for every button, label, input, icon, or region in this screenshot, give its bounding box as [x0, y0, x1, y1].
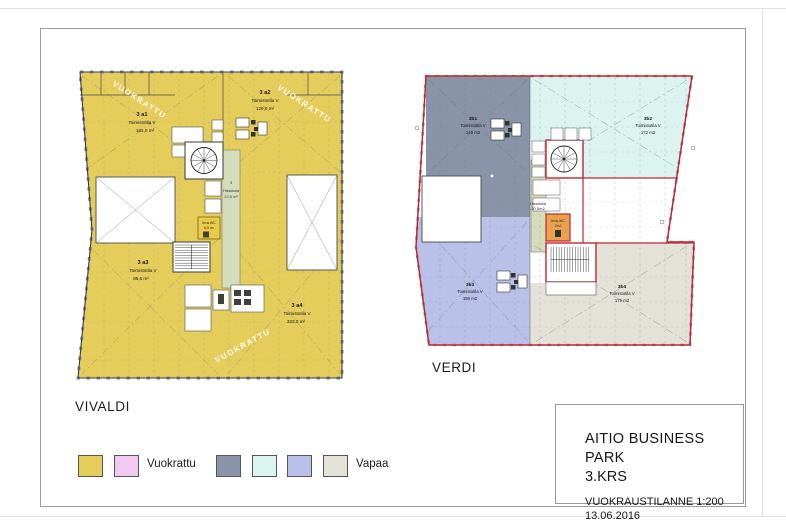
svg-text:3b3: 3b3 — [466, 282, 475, 288]
svg-text:181,0 m²: 181,0 m² — [136, 128, 155, 133]
svg-text:Toimistotila V: Toimistotila V — [609, 291, 634, 296]
svg-text:3 a3: 3 a3 — [138, 260, 149, 266]
status-line: VUOKRAUSTILANNE 1:200 — [585, 495, 743, 509]
legend-swatch-beige — [323, 455, 348, 477]
svg-text:3b2: 3b2 — [644, 116, 653, 122]
svg-text:3b1: 3b1 — [469, 116, 478, 122]
svg-text:3 a1: 3 a1 — [137, 112, 148, 118]
svg-text:22,0 m²: 22,0 m² — [224, 194, 238, 199]
legend-label-vuokrattu: Vuokrattu — [147, 458, 196, 470]
sheet-edge-top — [0, 8, 786, 9]
legend-swatch-pink — [114, 455, 139, 477]
svg-text:145 m2: 145 m2 — [466, 130, 481, 135]
svg-text:Hissiaula: Hissiaula — [223, 188, 240, 193]
svg-text:172 m2: 172 m2 — [641, 130, 656, 135]
svg-text:Toimistotila V: Toimistotila V — [457, 289, 482, 294]
vivaldi-lobby-strip — [222, 150, 240, 288]
svg-text:Toimistotila V: Toimistotila V — [283, 311, 311, 316]
verdi-wc-area: 7m2 — [555, 224, 562, 228]
svg-text:Toimistotila V: Toimistotila V — [129, 268, 157, 273]
svg-text:129,0 m²: 129,0 m² — [256, 106, 275, 111]
svg-text:Toimistotila V: Toimistotila V — [128, 120, 156, 125]
svg-text:3 a2: 3 a2 — [260, 90, 271, 96]
vivaldi-title: VIVALDI — [75, 399, 130, 414]
sheet-edge-right — [762, 8, 763, 517]
verdi-inva-wc: Inva-WC 7m2 — [546, 214, 570, 241]
svg-text:Toimistotila V: Toimistotila V — [635, 123, 660, 128]
floorplan-vivaldi: Inva-WC 6,0 m² — [68, 64, 358, 389]
svg-text:323,0 m²: 323,0 m² — [287, 319, 306, 324]
svg-text:3 a4: 3 a4 — [292, 303, 304, 309]
verdi-tenancy-lines — [583, 178, 694, 243]
vivaldi-spiral-stair-icon — [185, 142, 223, 179]
drawing-sheet: Inva-WC 6,0 m² — [0, 0, 786, 524]
vivaldi-lightwell-left — [96, 177, 175, 243]
verdi-lightwell — [422, 176, 481, 242]
legend-swatch-periwinkle — [287, 455, 312, 477]
floor-number: 3.KRS — [585, 468, 743, 487]
svg-text:85,5 m²: 85,5 m² — [133, 276, 149, 281]
vivaldi-wc-area: 6,0 m² — [204, 226, 215, 230]
legend-swatch-cyan — [252, 455, 277, 477]
svg-text:20,5m2: 20,5m2 — [531, 206, 545, 211]
svg-text:179 m2: 179 m2 — [615, 298, 630, 303]
vivaldi-inva-wc: Inva-WC 6,0 m² — [198, 217, 220, 239]
vivaldi-lightwell-right — [287, 175, 337, 270]
verdi-lobby-label: Hissiaula 20,5m2 — [530, 201, 547, 211]
vivaldi-stair-icon — [173, 242, 210, 272]
floorplan-verdi: Inva-WC 7m2 — [405, 62, 705, 354]
verdi-title: VERDI — [432, 360, 476, 375]
legend-swatch-yellow — [78, 455, 103, 477]
verdi-small-rooms — [551, 128, 591, 140]
verdi-wc-label: Inva-WC — [551, 219, 565, 223]
legend-swatch-gray — [216, 455, 241, 477]
verdi-stair-icon — [546, 243, 596, 295]
legend-label-vapaa: Vapaa — [356, 458, 388, 470]
svg-text:150 m2: 150 m2 — [463, 296, 478, 301]
svg-text:Toimistotila V: Toimistotila V — [460, 123, 485, 128]
date-line: 13.06.2016 — [585, 509, 743, 523]
svg-text:3b4: 3b4 — [618, 284, 627, 290]
verdi-spiral-stair-icon — [546, 140, 583, 178]
vivaldi-wc-label: Inva-WC — [202, 221, 216, 225]
title-block: AITIO BUSINESS PARK 3.KRS VUOKRAUSTILANN… — [555, 404, 744, 504]
svg-text:Toimistotila V: Toimistotila V — [251, 98, 279, 103]
project-name: AITIO BUSINESS PARK — [585, 430, 743, 468]
